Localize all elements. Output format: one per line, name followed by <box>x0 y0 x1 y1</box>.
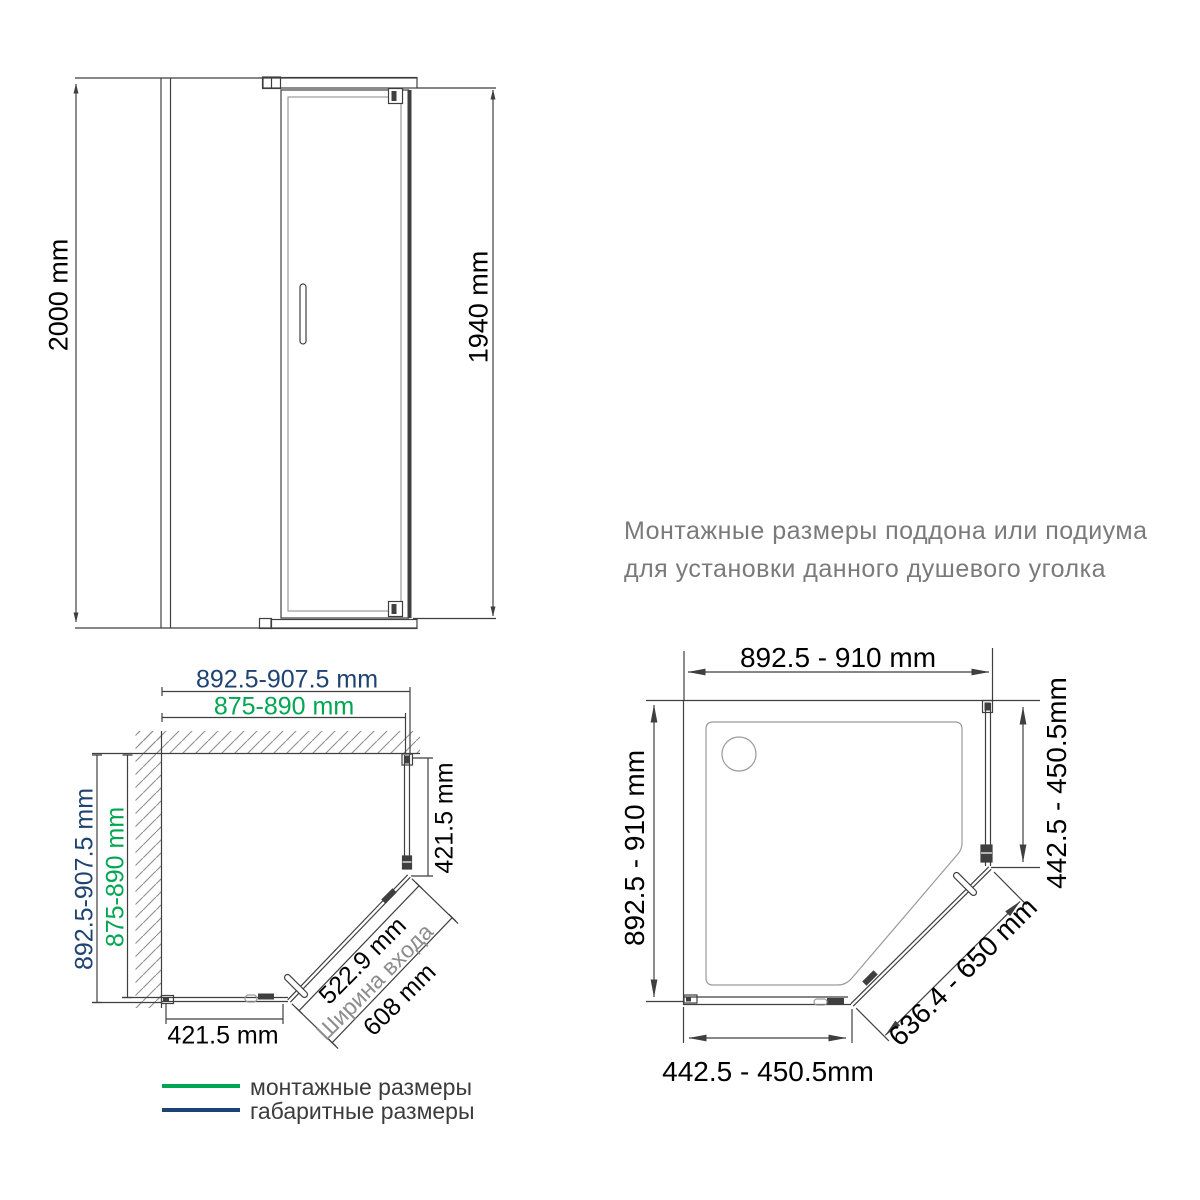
wall-bracket-detail <box>686 997 691 1002</box>
ext-line <box>646 701 683 1002</box>
elevation-view <box>75 77 496 629</box>
wall-bracket-detail <box>163 997 169 1002</box>
door-hinge-icon <box>381 888 397 904</box>
door-handle-icon <box>300 284 306 344</box>
hinge-bottom-detail <box>392 604 397 614</box>
wall-hatch-top <box>138 731 420 754</box>
shower-tray <box>706 722 962 985</box>
door-handle-icon <box>952 871 977 896</box>
drain-circle <box>722 737 756 771</box>
shower-enclosure-technical-drawing: Монтажные размеры поддона или подиума дл… <box>0 0 1200 1200</box>
plan-right-view <box>646 648 1040 1043</box>
install-note-line2: для установки данного душевого уголка <box>624 555 1106 584</box>
drawing-linework <box>0 0 1200 1200</box>
bottom-wall-bracket <box>260 619 272 629</box>
hinge-icon <box>258 994 274 1000</box>
door-handle-icon <box>283 973 308 998</box>
wall-hatch-left <box>136 731 162 1008</box>
right-glass-panel <box>405 755 410 862</box>
door-glass <box>288 97 401 611</box>
side-panel <box>161 78 171 628</box>
bottom-profile-bar <box>271 620 417 629</box>
hinge-top-detail <box>392 91 397 101</box>
hinge-icon <box>827 998 844 1004</box>
door-frame <box>281 90 409 618</box>
wall-bracket-detail <box>985 703 991 711</box>
bottom-glass-panel <box>683 997 851 1005</box>
wall-bracket-detail <box>404 756 410 764</box>
right-glass-panel <box>986 703 991 866</box>
top-profile-bar <box>263 78 417 89</box>
install-note-line1: Монтажные размеры поддона или подиума <box>624 517 1147 546</box>
